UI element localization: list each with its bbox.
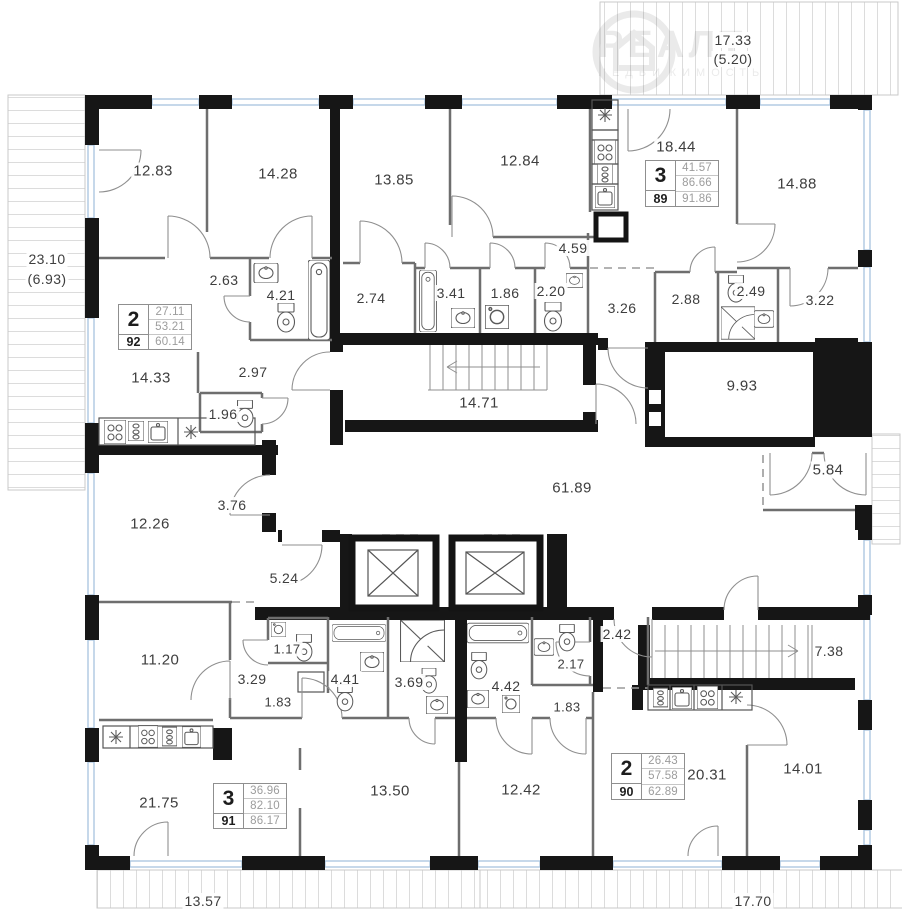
apartment-right-col: 41.57 86.66 91.86 xyxy=(676,161,718,206)
apartment-total-area: 60.14 xyxy=(149,334,191,349)
fridge-icon xyxy=(729,690,743,704)
shower-icon xyxy=(721,307,755,339)
room-area-label: 4.42 xyxy=(490,678,523,694)
washer-icon xyxy=(271,622,286,637)
sink-icon xyxy=(566,273,583,287)
ventilation-shaft xyxy=(596,214,626,240)
bathtub-icon xyxy=(419,270,436,332)
balcony-area-label: (5.20) xyxy=(712,51,755,67)
sink-icon xyxy=(254,263,278,283)
toilet-icon xyxy=(471,652,487,679)
apartment-number: 89 xyxy=(646,190,675,206)
room-area-label: 2.49 xyxy=(735,283,768,299)
apartment-main-area: 86.66 xyxy=(676,175,718,190)
apartment-info-table: 2 90 26.43 57.58 62.89 xyxy=(611,753,685,800)
room-area-label: 5.24 xyxy=(268,570,301,586)
stove-icon xyxy=(594,140,616,164)
room-area-label: 14.71 xyxy=(457,395,501,412)
oven-icon xyxy=(128,421,144,441)
room-area-label: 7.38 xyxy=(813,643,846,659)
kitchen-column xyxy=(592,100,618,210)
room-area-label: 4.59 xyxy=(557,240,590,256)
apartment-info-table: 2 92 27.11 53.21 60.14 xyxy=(118,304,192,350)
apartment-rooms-count: 2 xyxy=(119,305,148,334)
toilet-icon xyxy=(337,684,353,711)
apartment-rooms-count: 3 xyxy=(214,784,243,813)
washer-icon xyxy=(502,695,520,713)
room-area-label: 3.69 xyxy=(393,674,426,690)
entry-steps xyxy=(872,434,900,544)
room-area-label: 4.41 xyxy=(329,671,362,687)
toilet-icon xyxy=(559,624,575,651)
room-area-label: 1.17 xyxy=(272,642,303,657)
kitchen-counter xyxy=(103,726,213,748)
exterior-walls xyxy=(85,95,872,870)
room-area-label: 5.84 xyxy=(811,462,846,479)
kitchen-sink-icon xyxy=(672,687,692,709)
sink-icon xyxy=(360,652,384,672)
apartment-right-col: 26.43 57.58 62.89 xyxy=(642,754,684,799)
room-area-label: 14.28 xyxy=(256,166,300,183)
floor-plan-linework xyxy=(0,0,902,910)
sink-icon xyxy=(467,690,489,708)
shower-icon xyxy=(401,620,445,662)
apartment-living-area: 27.11 xyxy=(149,305,191,319)
room-area-label: 20.31 xyxy=(685,767,729,784)
bathtub-icon xyxy=(332,624,386,641)
oven-icon xyxy=(653,688,668,707)
apartment-rooms-count: 2 xyxy=(612,754,641,783)
apartment-right-col: 27.11 53.21 60.14 xyxy=(149,305,191,349)
room-area-label: 12.84 xyxy=(498,153,542,170)
stove-icon xyxy=(104,420,126,444)
apartment-number: 91 xyxy=(214,813,243,828)
stairwell-stairs xyxy=(428,345,547,390)
fridge-icon xyxy=(184,425,198,439)
room-area-label: 9.93 xyxy=(725,378,760,395)
sink-icon xyxy=(451,308,475,328)
balcony-left xyxy=(8,95,85,490)
apartment-living-area: 41.57 xyxy=(676,161,718,175)
washer-icon xyxy=(485,305,509,329)
stove-icon xyxy=(138,726,158,748)
room-area-label: 1.83 xyxy=(552,700,583,715)
stove-icon xyxy=(697,686,718,709)
room-area-label: 12.83 xyxy=(131,163,175,180)
toilet-icon xyxy=(278,303,295,332)
room-area-label: 2.17 xyxy=(556,657,587,672)
room-area-label: 61.89 xyxy=(550,480,594,497)
balcony-area-label: 23.10 xyxy=(26,251,67,267)
room-area-label: 11.20 xyxy=(139,652,181,669)
room-area-label: 18.44 xyxy=(654,139,698,156)
kitchen-sink-icon xyxy=(148,421,168,443)
room-area-label: 2.42 xyxy=(601,626,634,642)
apartment-left-col: 3 89 xyxy=(646,161,676,206)
room-area-label: 3.76 xyxy=(216,497,249,513)
room-area-label: 13.50 xyxy=(368,783,412,800)
elevator-shaft-2 xyxy=(452,538,540,608)
apartment-main-area: 82.10 xyxy=(244,798,286,813)
apartment-living-area: 36.96 xyxy=(244,784,286,798)
balcony-area-label: 17.33 xyxy=(712,32,753,48)
kitchen-sink-icon xyxy=(595,186,615,208)
apartment-info-table: 3 91 36.96 82.10 86.17 xyxy=(213,783,287,829)
toilet-icon xyxy=(545,302,562,331)
apartment-left-col: 3 91 xyxy=(214,784,244,828)
room-area-label: 4.21 xyxy=(265,287,298,303)
apartment-number: 90 xyxy=(612,783,641,799)
watermark-house-icon xyxy=(592,10,676,94)
room-area-label: 1.83 xyxy=(263,695,294,710)
room-area-label: 3.29 xyxy=(236,671,269,687)
apartment-living-area: 26.43 xyxy=(642,754,684,768)
apartment-total-area: 62.89 xyxy=(642,784,684,799)
sink-icon xyxy=(754,311,774,328)
apartment-right-col: 36.96 82.10 86.17 xyxy=(244,784,286,828)
room-area-label: 2.20 xyxy=(535,283,568,299)
windows xyxy=(88,99,870,867)
room-area-label: 3.26 xyxy=(606,300,639,316)
room-area-label: 13.85 xyxy=(372,172,416,189)
room-area-label: 2.97 xyxy=(237,364,270,380)
balcony-area-label: 13.57 xyxy=(182,893,223,909)
room-area-label: 1.96 xyxy=(207,406,240,422)
floor-plan: РЕАЛТ НЕДВИЖИМОСТЬ 12.83 14.28 13.85 12.… xyxy=(0,0,902,910)
room-area-label: 2.88 xyxy=(670,291,703,307)
fridge-icon xyxy=(109,730,123,744)
apartment-total-area: 91.86 xyxy=(676,191,718,206)
apartment-rooms-count: 3 xyxy=(646,161,675,190)
sink-icon xyxy=(426,696,448,714)
apartment-left-col: 2 92 xyxy=(119,305,149,349)
room-area-label: 21.75 xyxy=(137,795,181,812)
room-area-label: 14.01 xyxy=(781,761,825,778)
kitchen-sink-icon xyxy=(182,727,201,748)
room-area-label: 3.22 xyxy=(804,292,837,308)
bathroom-fixtures xyxy=(237,260,774,714)
apartment-number: 92 xyxy=(119,334,148,349)
room-area-label: 12.26 xyxy=(128,516,172,533)
apartment-left-col: 2 90 xyxy=(612,754,642,799)
room-area-label: 2.74 xyxy=(355,290,388,306)
room-area-label: 2.63 xyxy=(208,272,241,288)
balcony-area-label: (6.93) xyxy=(26,271,69,287)
elevator-shaft-1 xyxy=(352,538,436,608)
stairs-east xyxy=(652,625,812,678)
apartment-main-area: 53.21 xyxy=(149,319,191,334)
room-area-label: 14.88 xyxy=(775,176,819,193)
room-area-label: 14.33 xyxy=(129,370,173,387)
room-area-label: 3.41 xyxy=(435,285,468,301)
oven-icon xyxy=(162,727,177,746)
room-area-label: 1.86 xyxy=(489,285,522,301)
fridge-icon xyxy=(598,108,612,122)
bathtub-icon xyxy=(467,623,529,643)
balcony-area-label: 17.70 xyxy=(732,893,773,909)
bathtub-icon xyxy=(308,260,330,340)
apartment-total-area: 86.17 xyxy=(244,813,286,828)
apartment-main-area: 57.58 xyxy=(642,768,684,783)
sink-icon xyxy=(534,639,554,656)
toilet-icon xyxy=(237,400,253,427)
apartment-info-table: 3 89 41.57 86.66 91.86 xyxy=(645,160,719,207)
room-area-label: 12.42 xyxy=(499,782,543,799)
oven-icon xyxy=(597,164,613,184)
